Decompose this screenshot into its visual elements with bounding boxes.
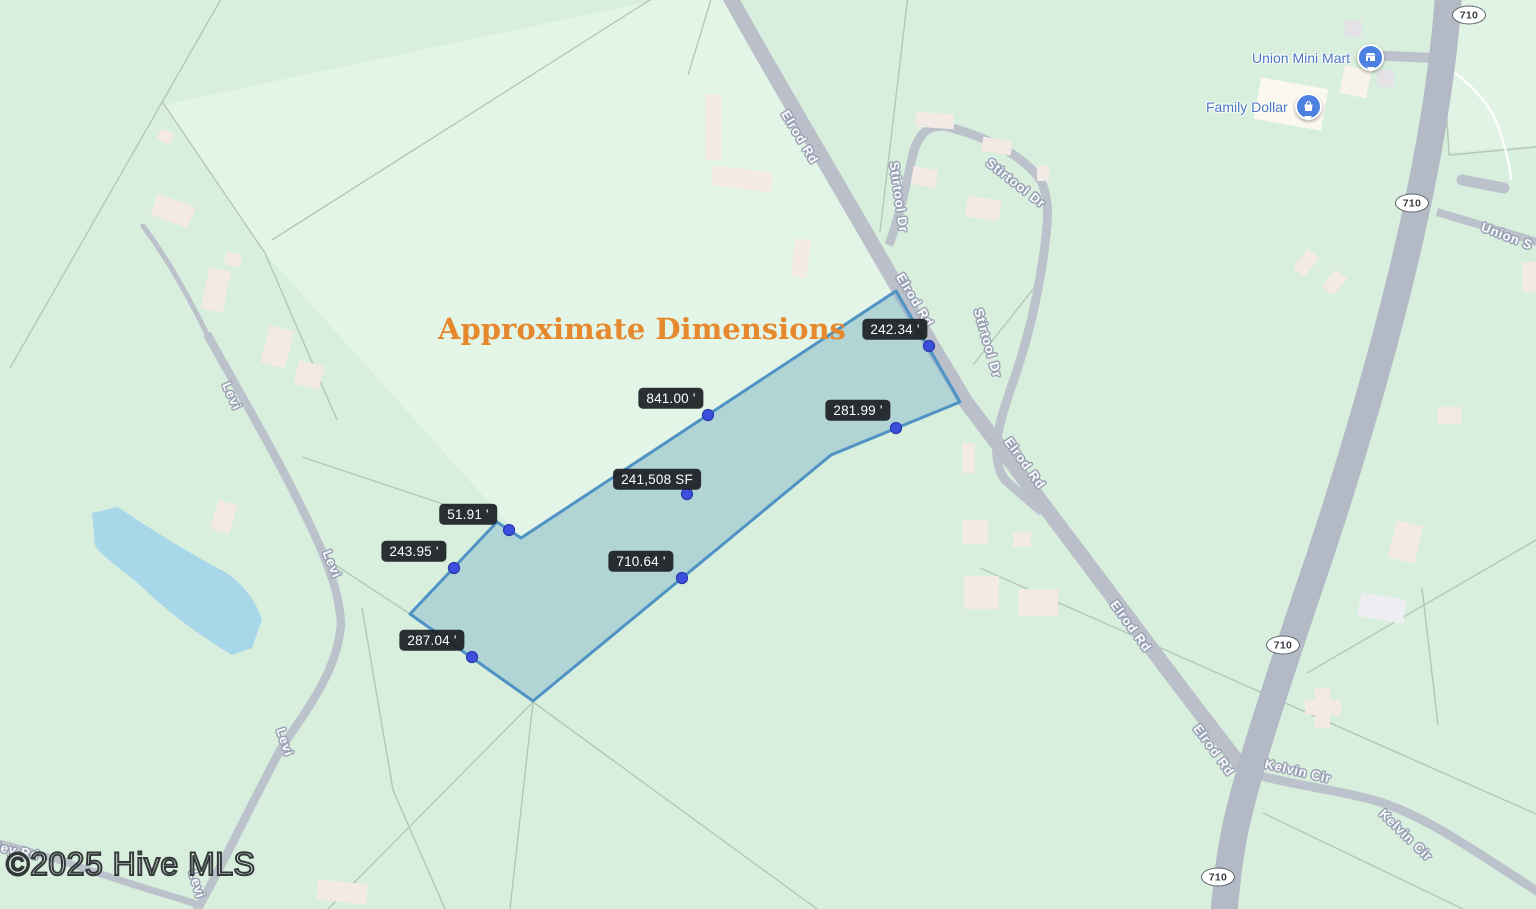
map-canvas[interactable]: Elrod Rd Elrod Rd Elrod Rd Elrod Rd Elro…: [0, 0, 1536, 909]
page-title: Approximate Dimensions: [438, 312, 846, 346]
poi-family-dollar-label: Family Dollar: [1206, 99, 1288, 115]
poi-union-mini-mart-label: Union Mini Mart: [1252, 50, 1350, 66]
dimension-label: 841.00 ': [638, 388, 703, 409]
dimension-label: 51.91 ': [439, 504, 497, 525]
storefront-icon: [1364, 51, 1377, 64]
store-pin-icon[interactable]: [1357, 44, 1384, 71]
route-shield-710: 710: [1452, 6, 1486, 25]
route-shield-710: 710: [1266, 636, 1300, 655]
poi-union-mini-mart[interactable]: Union Mini Mart: [1252, 44, 1384, 71]
dimension-label: 281.99 ': [825, 400, 890, 421]
dimension-label: 242.34 ': [862, 319, 927, 340]
route-shield-710: 710: [1201, 868, 1235, 887]
shopping-bag-pin-icon[interactable]: [1295, 93, 1322, 120]
mls-watermark: ©2025 Hive MLS: [6, 846, 255, 883]
dimension-label: 243.95 ': [381, 541, 446, 562]
shopping-bag-icon: [1302, 100, 1315, 113]
dimension-label: 710.64 ': [608, 551, 673, 572]
poi-family-dollar[interactable]: Family Dollar: [1206, 93, 1322, 120]
route-shield-710: 710: [1395, 194, 1429, 213]
dimension-label: 287.04 ': [399, 630, 464, 651]
parcel-area-label: 241,508 SF: [613, 469, 701, 490]
